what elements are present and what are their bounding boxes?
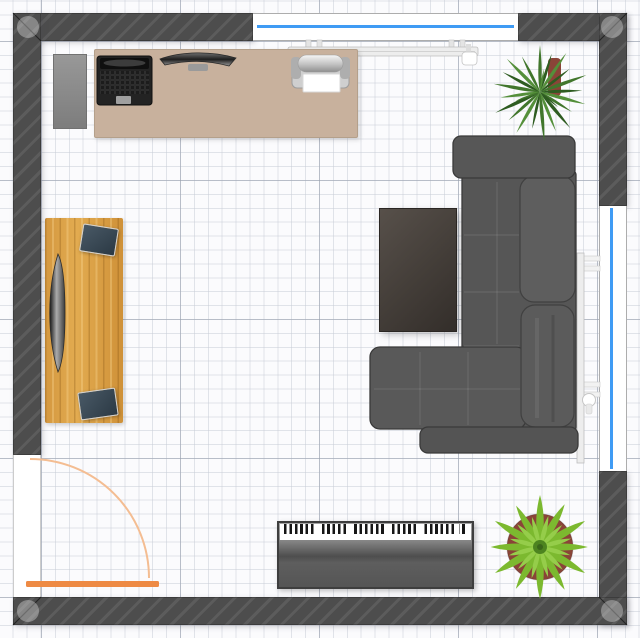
wall-top-left-segment[interactable] [13,13,253,41]
office-desk[interactable] [94,49,358,138]
digital-piano[interactable] [277,521,474,589]
tv-screen[interactable] [379,208,457,332]
tablet-screen-2[interactable] [77,387,119,420]
door-opening[interactable] [13,455,41,597]
wall-bottom[interactable] [13,597,627,625]
window-right[interactable] [599,206,627,471]
tablet-screen-1[interactable] [79,223,119,256]
window-right-glass [610,208,613,469]
wall-endpoint-marker-top-right[interactable] [601,16,623,38]
wall-left[interactable] [13,13,41,455]
wall-endpoint-marker-top-left[interactable] [17,16,39,38]
piano-keyboard [280,524,471,540]
cabinet[interactable] [53,54,87,129]
wall-right-top-segment[interactable] [599,13,627,206]
wall-endpoint-marker-bottom-right[interactable] [601,600,623,622]
wall-endpoint-marker-bottom-left[interactable] [17,600,39,622]
window-top-glass [257,25,514,28]
floor-plan-canvas [0,0,640,638]
